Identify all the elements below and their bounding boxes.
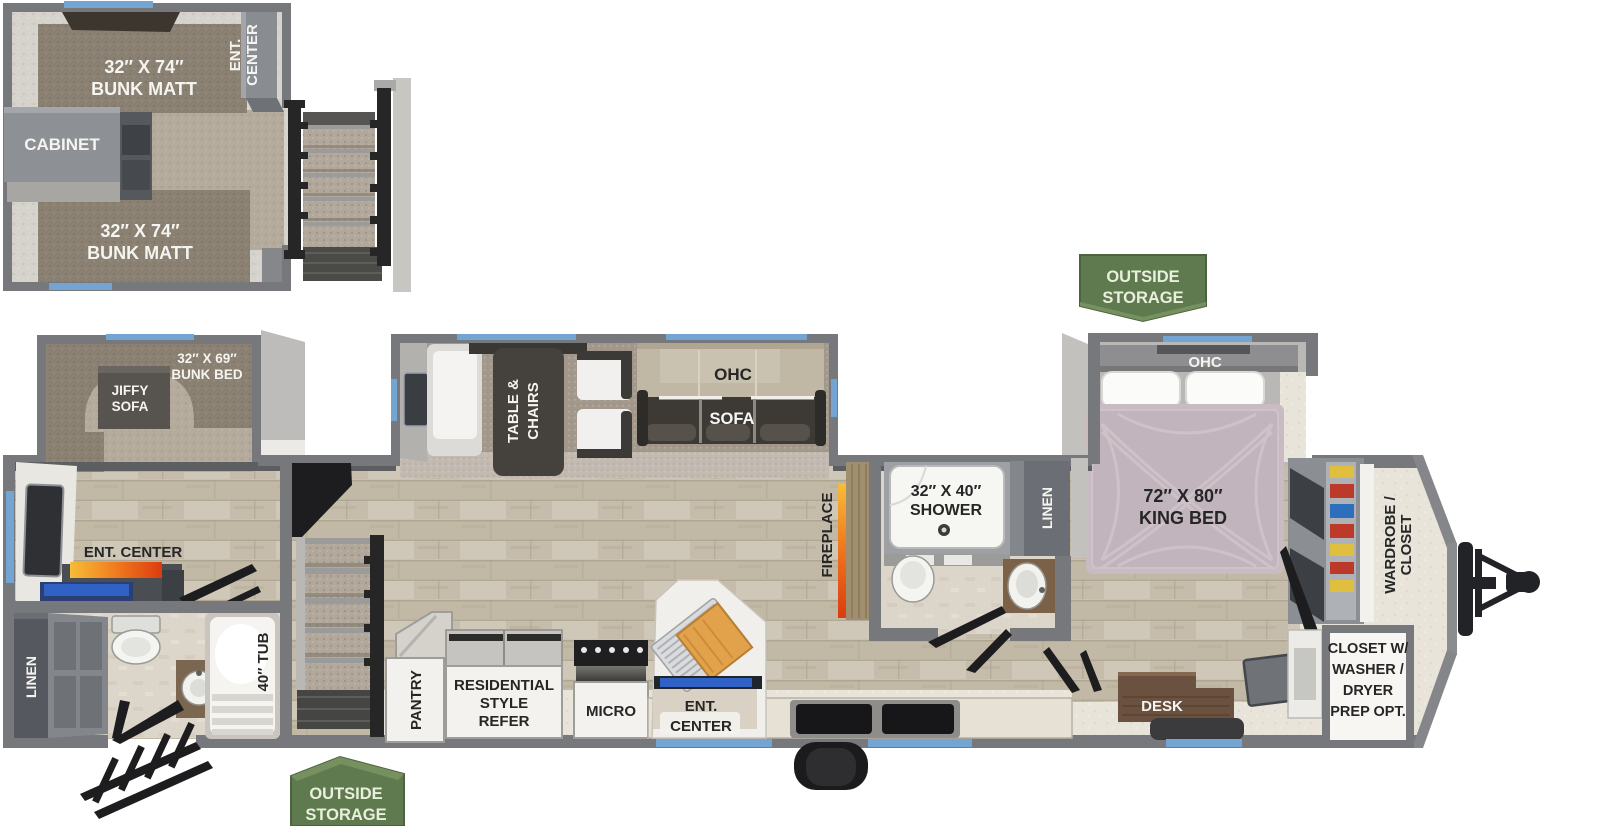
svg-text:KING BED: KING BED [1139, 508, 1227, 528]
svg-text:RESIDENTIAL: RESIDENTIAL [454, 677, 554, 694]
svg-text:TABLE &: TABLE & [505, 379, 522, 443]
svg-text:ENT.: ENT. [227, 39, 244, 72]
svg-text:BUNK MATT: BUNK MATT [91, 79, 197, 99]
svg-text:OHC: OHC [1188, 354, 1222, 371]
svg-text:72″ X 80″: 72″ X 80″ [1143, 486, 1223, 506]
svg-text:DESK: DESK [1141, 698, 1183, 715]
svg-text:SOFA: SOFA [112, 399, 149, 414]
svg-text:CENTER: CENTER [244, 24, 261, 86]
svg-text:32″ X 69″: 32″ X 69″ [177, 351, 237, 366]
svg-text:STORAGE: STORAGE [305, 806, 386, 824]
svg-text:CENTER: CENTER [670, 718, 732, 735]
svg-text:DRYER: DRYER [1343, 683, 1394, 699]
svg-text:CLOSET: CLOSET [1398, 515, 1415, 576]
svg-text:32″ X 40″: 32″ X 40″ [911, 483, 982, 500]
svg-text:40″ TUB: 40″ TUB [255, 632, 272, 691]
svg-text:SOFA: SOFA [710, 410, 755, 428]
svg-text:OHC: OHC [714, 365, 752, 384]
svg-text:OUTSIDE: OUTSIDE [309, 785, 382, 803]
svg-text:CLOSET W/: CLOSET W/ [1328, 641, 1409, 657]
svg-text:LINEN: LINEN [23, 656, 39, 698]
svg-text:BUNK BED: BUNK BED [171, 367, 243, 382]
svg-text:ENT. CENTER: ENT. CENTER [84, 544, 183, 561]
svg-text:CABINET: CABINET [24, 135, 100, 154]
svg-text:JIFFY: JIFFY [112, 383, 149, 398]
svg-text:BUNK MATT: BUNK MATT [87, 243, 193, 263]
svg-text:LINEN: LINEN [1039, 487, 1055, 529]
svg-text:REFER: REFER [479, 713, 530, 730]
svg-text:32″ X 74″: 32″ X 74″ [104, 57, 184, 77]
svg-text:STORAGE: STORAGE [1102, 289, 1183, 307]
svg-text:ENT.: ENT. [685, 698, 718, 715]
svg-text:SHOWER: SHOWER [910, 502, 982, 519]
svg-text:CHAIRS: CHAIRS [525, 382, 542, 440]
svg-text:PREP OPT.: PREP OPT. [1330, 704, 1405, 720]
svg-text:PANTRY: PANTRY [408, 670, 425, 730]
svg-text:FIREPLACE: FIREPLACE [819, 492, 836, 577]
svg-text:MICRO: MICRO [586, 703, 636, 720]
svg-text:WASHER /: WASHER / [1332, 662, 1404, 678]
svg-text:32″ X 74″: 32″ X 74″ [100, 221, 180, 241]
svg-text:OUTSIDE: OUTSIDE [1106, 268, 1179, 286]
svg-text:WARDROBE /: WARDROBE / [1382, 495, 1399, 593]
svg-text:STYLE: STYLE [480, 695, 528, 712]
